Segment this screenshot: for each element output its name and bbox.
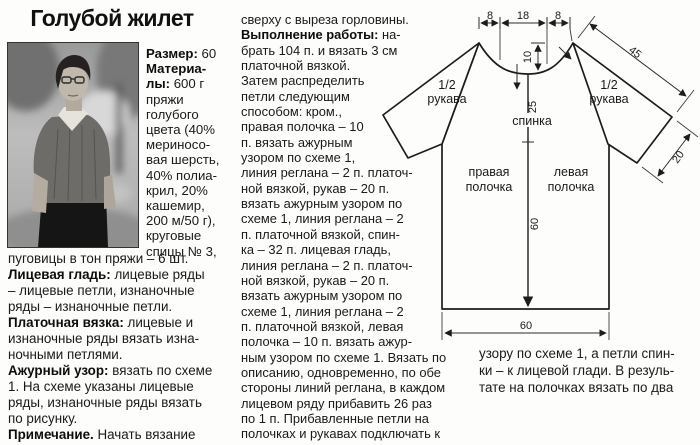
dim-sleeve-length: 45 xyxy=(626,44,643,61)
label-left-sleeve-half: 1/2 xyxy=(438,78,455,92)
label-left-sleeve-word: рукава xyxy=(427,92,466,106)
dim-neck-depth: 10 xyxy=(522,51,534,63)
materials-text: Размер: 60Материа-лы: 600 гпряжиголубого… xyxy=(146,46,234,259)
dim-cuff-width: 20 xyxy=(670,149,687,166)
dim-body-length: 60 xyxy=(529,218,541,230)
label-back: спинка xyxy=(512,114,552,128)
label-right-sleeve-word: рукава xyxy=(589,92,628,106)
dim-neck-front-left: 8 xyxy=(487,10,493,22)
label-right-sleeve-half: 1/2 xyxy=(600,78,617,92)
dim-yoke-depth: 25 xyxy=(527,101,539,113)
page-title: Голубой жилет xyxy=(4,5,220,32)
model-photo-image xyxy=(8,43,138,247)
label-front-right-1: правая xyxy=(469,165,510,179)
garment-schematic-diagram: 8 18 8 10 25 60 60 45 20 1/2 рукава 1/2 … xyxy=(375,0,700,345)
stitch-definitions-text: пуговицы в тон пряжи – 6 шт.Лицевая глад… xyxy=(8,251,234,443)
label-front-left-1: левая xyxy=(554,165,588,179)
continuation-text: узору по схеме 1, а петли спин-ки – к ли… xyxy=(479,345,700,396)
dim-neck-front-right: 8 xyxy=(555,10,561,22)
label-front-left-2: полочка xyxy=(548,180,595,194)
dim-hem-width: 60 xyxy=(520,320,532,332)
dim-neck-back: 18 xyxy=(517,10,529,22)
label-front-right-2: полочка xyxy=(466,180,513,194)
model-photo xyxy=(7,42,139,248)
